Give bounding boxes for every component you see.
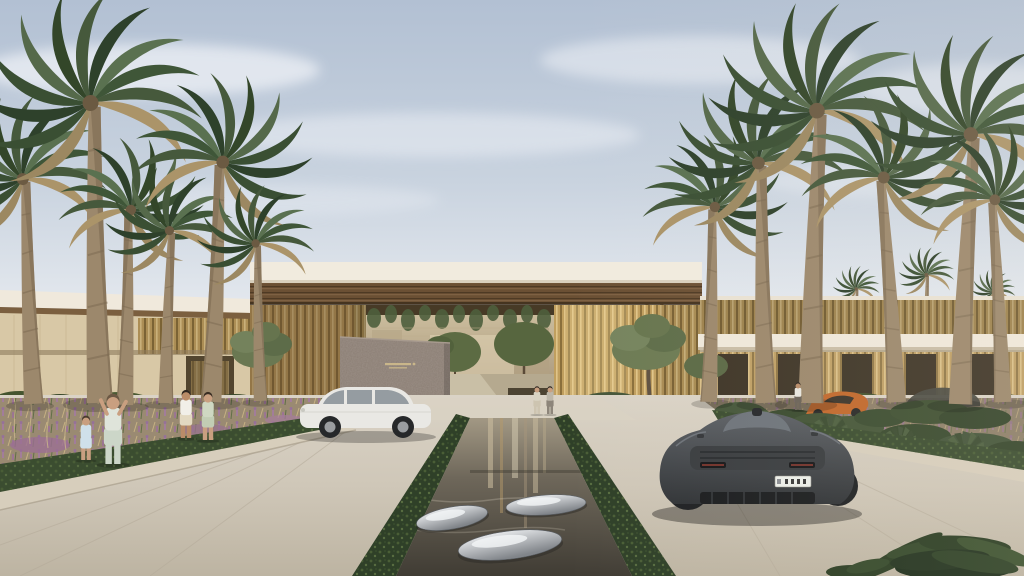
- rendering-stage: [0, 0, 1024, 576]
- resort-entrance-rendering: [0, 0, 1024, 576]
- warm-light-overlay: [0, 0, 1024, 576]
